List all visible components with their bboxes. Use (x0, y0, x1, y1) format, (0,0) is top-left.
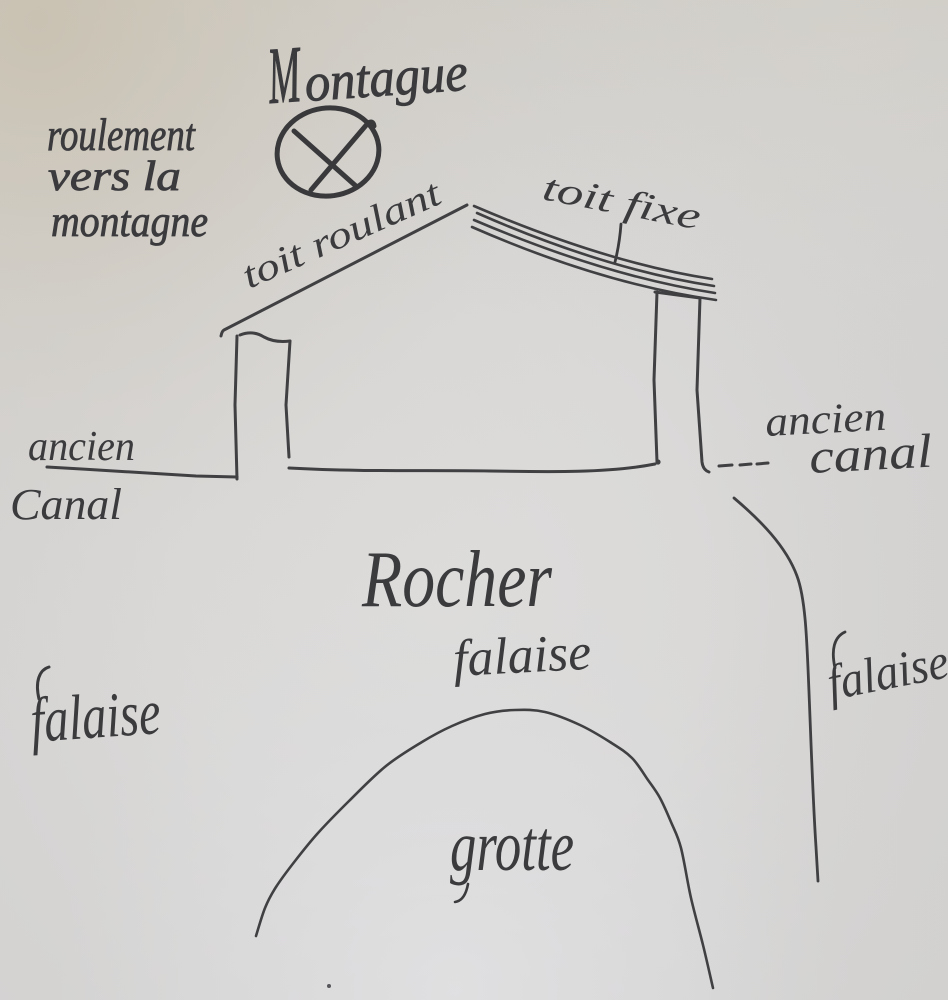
svg-text:canal: canal (808, 425, 934, 484)
svg-text:Rocher: Rocher (361, 536, 553, 624)
svg-text:ancien: ancien (28, 424, 135, 470)
svg-text:roulement: roulement (47, 109, 196, 160)
svg-text:ontague: ontague (303, 42, 470, 113)
svg-text:montagne: montagne (51, 197, 208, 246)
svg-text:vers la: vers la (48, 154, 181, 200)
svg-text:falaise: falaise (452, 624, 593, 688)
svg-text:Canal: Canal (10, 480, 122, 529)
svg-text:falaise: falaise (28, 676, 163, 756)
svg-text:grotte: grotte (450, 806, 574, 886)
